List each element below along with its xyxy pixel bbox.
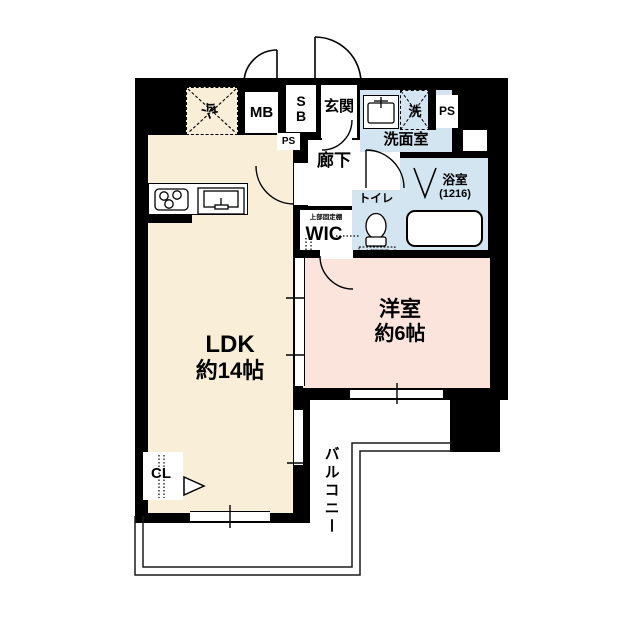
label-balcony: バルコニー <box>316 430 346 552</box>
label-ps-top: PS <box>436 95 458 128</box>
label-western-room: 洋室 約6帖 <box>330 296 470 348</box>
wall-block-balcony-corner <box>450 400 500 452</box>
entrance-door-arc-icon <box>315 37 361 83</box>
label-bathroom: 浴室 (1216) <box>424 170 486 204</box>
label-meter-box: MB <box>245 92 278 133</box>
door-opening-entrance-hall <box>322 130 352 142</box>
label-fridge: 冷 <box>186 87 238 135</box>
label-ldk: LDK 約14帖 <box>160 328 300 386</box>
window-western-south <box>350 389 443 399</box>
label-shoe-box: S B <box>286 85 316 132</box>
label-toilet: トイレ <box>352 192 400 207</box>
bathtub <box>406 210 483 247</box>
door-opening-western <box>320 250 353 259</box>
kitchen-counter <box>148 183 248 215</box>
floor-plan: 冷 MB S B 玄関 PS PS 洗 洗面室 廊下 上部固定棚 WIC トイレ… <box>0 0 640 640</box>
door-opening-ldk <box>294 163 308 205</box>
window-ldk-balcony <box>293 410 304 465</box>
label-wic: WIC <box>298 222 350 248</box>
label-hallway: 廊下 <box>308 148 360 174</box>
washbasin-box <box>363 95 399 129</box>
label-ps-small: PS <box>277 133 300 150</box>
window-ldk-south <box>190 511 270 522</box>
label-closet: CL <box>143 458 179 490</box>
label-washroom: 洗面室 <box>360 130 452 150</box>
label-wic-shelf: 上部固定棚 <box>307 213 344 220</box>
cabinet-box <box>463 130 487 151</box>
label-toilet-shelf: 上部吊戸棚 <box>367 249 388 254</box>
wall-kitchen-stub <box>148 215 192 223</box>
label-entrance: 玄関 <box>319 88 359 126</box>
label-washer: 洗 <box>400 98 430 126</box>
room-washroom-vestibule <box>360 150 400 190</box>
